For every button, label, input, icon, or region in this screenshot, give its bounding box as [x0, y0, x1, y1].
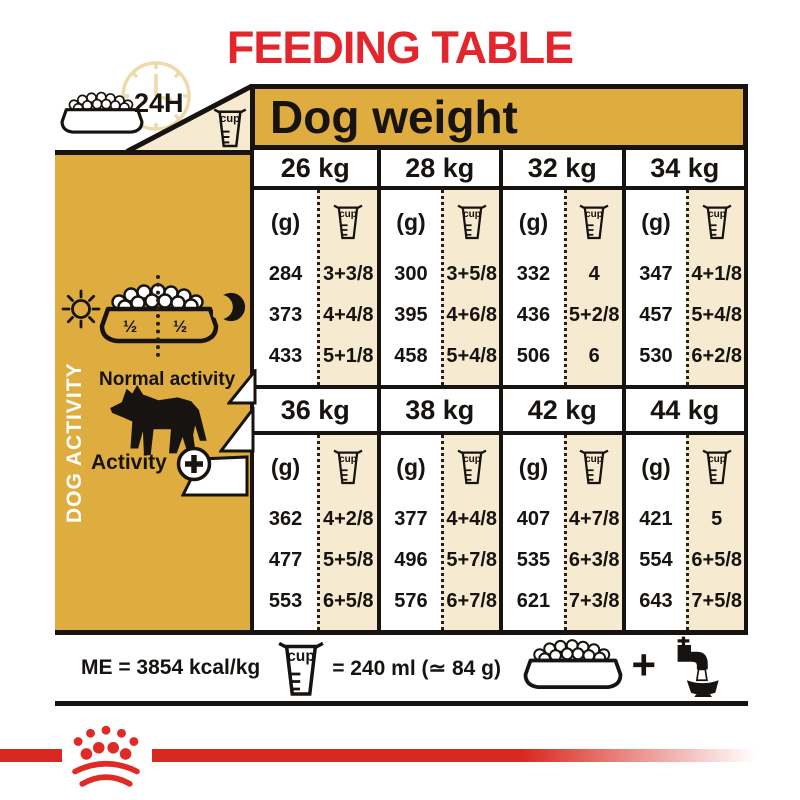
- cups-value: 5+1/8: [320, 336, 376, 377]
- moon-icon: [213, 289, 247, 325]
- cups-value: 4: [567, 254, 622, 295]
- grams-value: 436: [503, 295, 564, 336]
- half-portion-right: ½: [173, 317, 187, 337]
- weight-header-row: 26 kg28 kg32 kg34 kg: [254, 150, 744, 190]
- plus-circle-icon: [175, 445, 213, 483]
- grams-subcolumn: (g)407535621: [503, 435, 564, 630]
- grams-subcolumn: (g)421554643: [626, 435, 687, 630]
- measuring-cup-icon: [701, 201, 733, 243]
- grams-value: 554: [626, 540, 687, 581]
- grams-value: 576: [381, 581, 442, 622]
- cups-subcolumn: 4+1/85+4/86+2/8: [686, 190, 744, 385]
- cups-value: 5+5/8: [320, 540, 376, 581]
- cup-unit-header: [689, 190, 744, 254]
- cup-unit-header: [567, 435, 622, 499]
- cups-subcolumn: 3+5/84+6/85+4/8: [441, 190, 499, 385]
- measuring-cup-icon: [332, 446, 364, 488]
- weight-column: (g)3003954583+5/84+6/85+4/8: [377, 190, 500, 385]
- water-faucet-icon: [660, 633, 722, 699]
- grams-value: 421: [626, 499, 687, 540]
- cups-value: 4+6/8: [444, 295, 499, 336]
- cups-value: 4+1/8: [689, 254, 744, 295]
- measuring-cup-icon: [701, 446, 733, 488]
- dog-activity-label: DOG ACTIVITY: [63, 363, 87, 523]
- gram-unit-label: (g): [626, 435, 687, 499]
- plus-sign: +: [631, 641, 656, 689]
- gram-unit-label: (g): [254, 435, 317, 499]
- weight-header-cell: 38 kg: [377, 389, 500, 431]
- gram-unit-label: (g): [626, 190, 687, 254]
- grams-value: 643: [626, 581, 687, 622]
- grams-value: 362: [254, 499, 317, 540]
- grams-value: 621: [503, 581, 564, 622]
- grams-value: 300: [381, 254, 442, 295]
- weight-header-cell: 44 kg: [622, 389, 745, 431]
- cup-unit-header: [444, 435, 499, 499]
- weight-column: (g)3624775534+2/85+5/86+5/8: [254, 435, 377, 630]
- cups-value: 5: [689, 499, 744, 540]
- cups-value: 4+4/8: [444, 499, 499, 540]
- cup-unit-header: [320, 190, 376, 254]
- metabolizable-energy-label: ME = 3854 kcal/kg: [81, 656, 260, 680]
- food-bowl-icon: [517, 638, 629, 698]
- sun-icon: [61, 289, 101, 329]
- grams-value: 506: [503, 336, 564, 377]
- cups-value: 6+5/8: [320, 581, 376, 622]
- cups-value: 6+5/8: [689, 540, 744, 581]
- grams-value: 347: [626, 254, 687, 295]
- weight-column: (g)42155464356+5/87+5/8: [622, 435, 745, 630]
- cup-unit-header: [567, 190, 622, 254]
- cup-equivalence-label: = 240 ml (≃ 84 g): [332, 656, 501, 681]
- measuring-cup-icon: [578, 201, 610, 243]
- grams-value: 458: [381, 336, 442, 377]
- grams-value: 477: [254, 540, 317, 581]
- cups-value: 4+2/8: [320, 499, 376, 540]
- cups-value: 5+4/8: [689, 295, 744, 336]
- grams-value: 530: [626, 336, 687, 377]
- cups-subcolumn: 4+7/86+3/87+3/8: [564, 435, 622, 630]
- grams-subcolumn: (g)347457530: [626, 190, 687, 385]
- grams-value: 373: [254, 295, 317, 336]
- gram-unit-label: (g): [503, 435, 564, 499]
- grams-subcolumn: (g)377496576: [381, 435, 442, 630]
- day-night-divider: [156, 275, 160, 357]
- feeding-table: 26 kg28 kg32 kg34 kg (g)2843734333+3/84+…: [250, 150, 748, 630]
- brand-stripe-left: [0, 749, 62, 762]
- cups-value: 6+2/8: [689, 336, 744, 377]
- measuring-cup-icon: [456, 446, 488, 488]
- measuring-cup-icon: [578, 446, 610, 488]
- grams-value: 377: [381, 499, 442, 540]
- grams-value: 395: [381, 295, 442, 336]
- crown-paw-logo: [58, 724, 154, 788]
- feeding-block: (g)3624775534+2/85+5/86+5/8(g)3774965764…: [254, 435, 744, 630]
- activity-level-2-icon: [219, 407, 255, 453]
- weight-header-cell: 28 kg: [377, 150, 500, 186]
- gram-unit-label: (g): [254, 190, 317, 254]
- weight-header-cell: 32 kg: [499, 150, 622, 186]
- activity-level-1-icon: [227, 369, 257, 405]
- weight-header-row: 36 kg38 kg42 kg44 kg: [254, 385, 744, 435]
- grams-value: 535: [503, 540, 564, 581]
- cups-value: 3+5/8: [444, 254, 499, 295]
- grams-subcolumn: (g)332436506: [503, 190, 564, 385]
- weight-header-cell: 42 kg: [499, 389, 622, 431]
- grams-value: 496: [381, 540, 442, 581]
- cups-value: 6+3/8: [567, 540, 622, 581]
- cups-value: 6: [567, 336, 622, 377]
- grams-value: 457: [626, 295, 687, 336]
- cup-unit-header: [320, 435, 376, 499]
- grams-value: 553: [254, 581, 317, 622]
- cups-value: 4+7/8: [567, 499, 622, 540]
- dog-weight-header: Dog weight: [250, 84, 748, 150]
- gram-unit-label: (g): [503, 190, 564, 254]
- weight-header-cell: 26 kg: [254, 150, 377, 186]
- cups-subcolumn: 4+2/85+5/86+5/8: [317, 435, 376, 630]
- measuring-cup-icon: [276, 638, 326, 700]
- grams-value: 407: [503, 499, 564, 540]
- grams-value: 284: [254, 254, 317, 295]
- legend-row: ME = 3854 kcal/kg = 240 ml (≃ 84 g) +: [55, 630, 748, 706]
- grams-value: 332: [503, 254, 564, 295]
- measuring-cup-icon: [456, 201, 488, 243]
- activity-plus-label: Activity: [91, 451, 167, 475]
- dog-activity-sidebar: DOG ACTIVITY ½ ½ Normal activity Activit…: [55, 150, 250, 630]
- weight-column: (g)33243650645+2/86: [499, 190, 622, 385]
- grams-value: 433: [254, 336, 317, 377]
- grams-subcolumn: (g)362477553: [254, 435, 317, 630]
- cup-unit-header: [444, 190, 499, 254]
- cups-value: 3+3/8: [320, 254, 376, 295]
- measuring-cup-icon: [332, 201, 364, 243]
- gram-unit-label: (g): [381, 435, 442, 499]
- weight-column: (g)4075356214+7/86+3/87+3/8: [499, 435, 622, 630]
- cups-value: 4+4/8: [320, 295, 376, 336]
- grams-subcolumn: (g)300395458: [381, 190, 442, 385]
- weight-column: (g)2843734333+3/84+4/85+1/8: [254, 190, 377, 385]
- cups-value: 7+5/8: [689, 581, 744, 622]
- cups-subcolumn: 56+5/87+5/8: [686, 435, 744, 630]
- cups-subcolumn: 45+2/86: [564, 190, 622, 385]
- gram-unit-label: (g): [381, 190, 442, 254]
- weight-column: (g)3474575304+1/85+4/86+2/8: [622, 190, 745, 385]
- grams-subcolumn: (g)284373433: [254, 190, 317, 385]
- weight-header-cell: 34 kg: [622, 150, 745, 186]
- dog-weight-label: Dog weight: [270, 90, 518, 144]
- cups-value: 6+7/8: [444, 581, 499, 622]
- cups-value: 7+3/8: [567, 581, 622, 622]
- feeding-block: (g)2843734333+3/84+4/85+1/8(g)3003954583…: [254, 190, 744, 385]
- cup-unit-header: [689, 435, 744, 499]
- cups-subcolumn: 4+4/85+7/86+7/8: [441, 435, 499, 630]
- measuring-cup-icon: [212, 106, 248, 150]
- cups-value: 5+4/8: [444, 336, 499, 377]
- cups-subcolumn: 3+3/84+4/85+1/8: [317, 190, 376, 385]
- cups-value: 5+7/8: [444, 540, 499, 581]
- brand-stripe-right: [152, 749, 768, 762]
- weight-header-cell: 36 kg: [254, 389, 377, 431]
- cups-value: 5+2/8: [567, 295, 622, 336]
- half-portion-left: ½: [123, 317, 137, 337]
- weight-column: (g)3774965764+4/85+7/86+7/8: [377, 435, 500, 630]
